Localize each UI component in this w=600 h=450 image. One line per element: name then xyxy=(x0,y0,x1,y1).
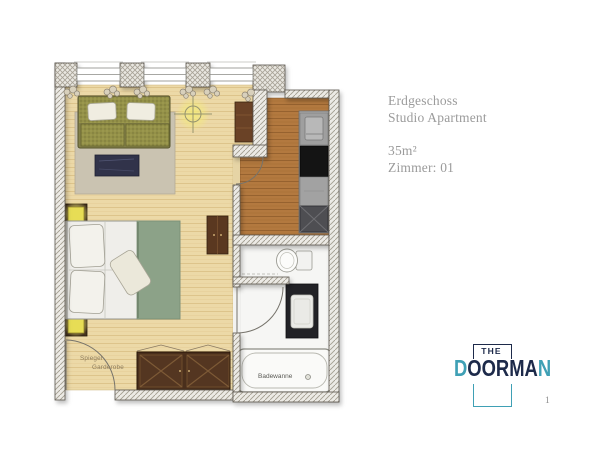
toilet xyxy=(277,249,313,272)
apartment-type-label: Studio Apartment xyxy=(388,109,578,126)
tall-cabinet xyxy=(235,102,253,142)
wall-bath-bottom xyxy=(233,392,339,402)
window xyxy=(207,62,256,81)
logo-letter-n: N xyxy=(538,355,551,381)
wall-kitchen-top xyxy=(285,90,329,98)
page-number: 1 xyxy=(545,396,550,406)
floor-label: Erdgeschoss xyxy=(388,92,578,109)
drain-icon xyxy=(306,375,311,380)
sofa-pillow xyxy=(127,103,156,121)
wall-bath-partition xyxy=(233,277,289,284)
wall-interior xyxy=(233,333,240,392)
mirror-label: Spiegel xyxy=(80,355,102,362)
wall-pier xyxy=(186,63,210,87)
logo-doorman-label: DOORMAN xyxy=(454,355,542,381)
kitchen-doorway-threshold xyxy=(233,157,240,185)
bed-pillow xyxy=(69,224,105,268)
wall-right xyxy=(329,90,339,402)
room-number-label: Zimmer: 01 xyxy=(388,159,578,176)
bathtub-label: Badewanne xyxy=(258,373,293,380)
info-panel: Erdgeschoss Studio Apartment 35m² Zimmer… xyxy=(388,92,578,176)
doorman-logo: THE DOORMAN xyxy=(443,340,553,414)
logo-doorframe-bottom xyxy=(473,384,512,407)
logo-letters-oorma: OORMA xyxy=(467,355,538,381)
wall-pier xyxy=(120,63,144,87)
wall-corner-block xyxy=(253,65,285,92)
wall-bottom xyxy=(115,390,233,400)
kitchen-appliance xyxy=(300,206,328,232)
bed xyxy=(65,221,180,319)
bathtub: Badewanne xyxy=(238,349,331,392)
wall-step-horizontal xyxy=(233,145,267,157)
wall-left xyxy=(55,63,65,400)
kitchen-sink xyxy=(300,113,328,145)
window xyxy=(141,62,189,81)
area-label: 35m² xyxy=(388,142,578,159)
cooktop xyxy=(300,146,328,177)
coffee-table xyxy=(95,155,139,176)
window xyxy=(74,62,123,81)
bed-pillow xyxy=(69,270,105,314)
sofa-pillow xyxy=(88,102,117,120)
wall-pier xyxy=(55,63,77,87)
wardrobe-label: Garderobe xyxy=(92,364,124,371)
vanity-sink xyxy=(286,284,318,338)
wall-bath-top xyxy=(233,235,329,245)
wardrobe xyxy=(137,345,230,390)
side-cabinet xyxy=(207,216,228,254)
kitchen-counter xyxy=(299,111,329,233)
sofa xyxy=(78,96,170,148)
windows xyxy=(74,62,256,81)
lamp-icon xyxy=(68,207,84,222)
logo-letter-d: D xyxy=(454,355,467,381)
